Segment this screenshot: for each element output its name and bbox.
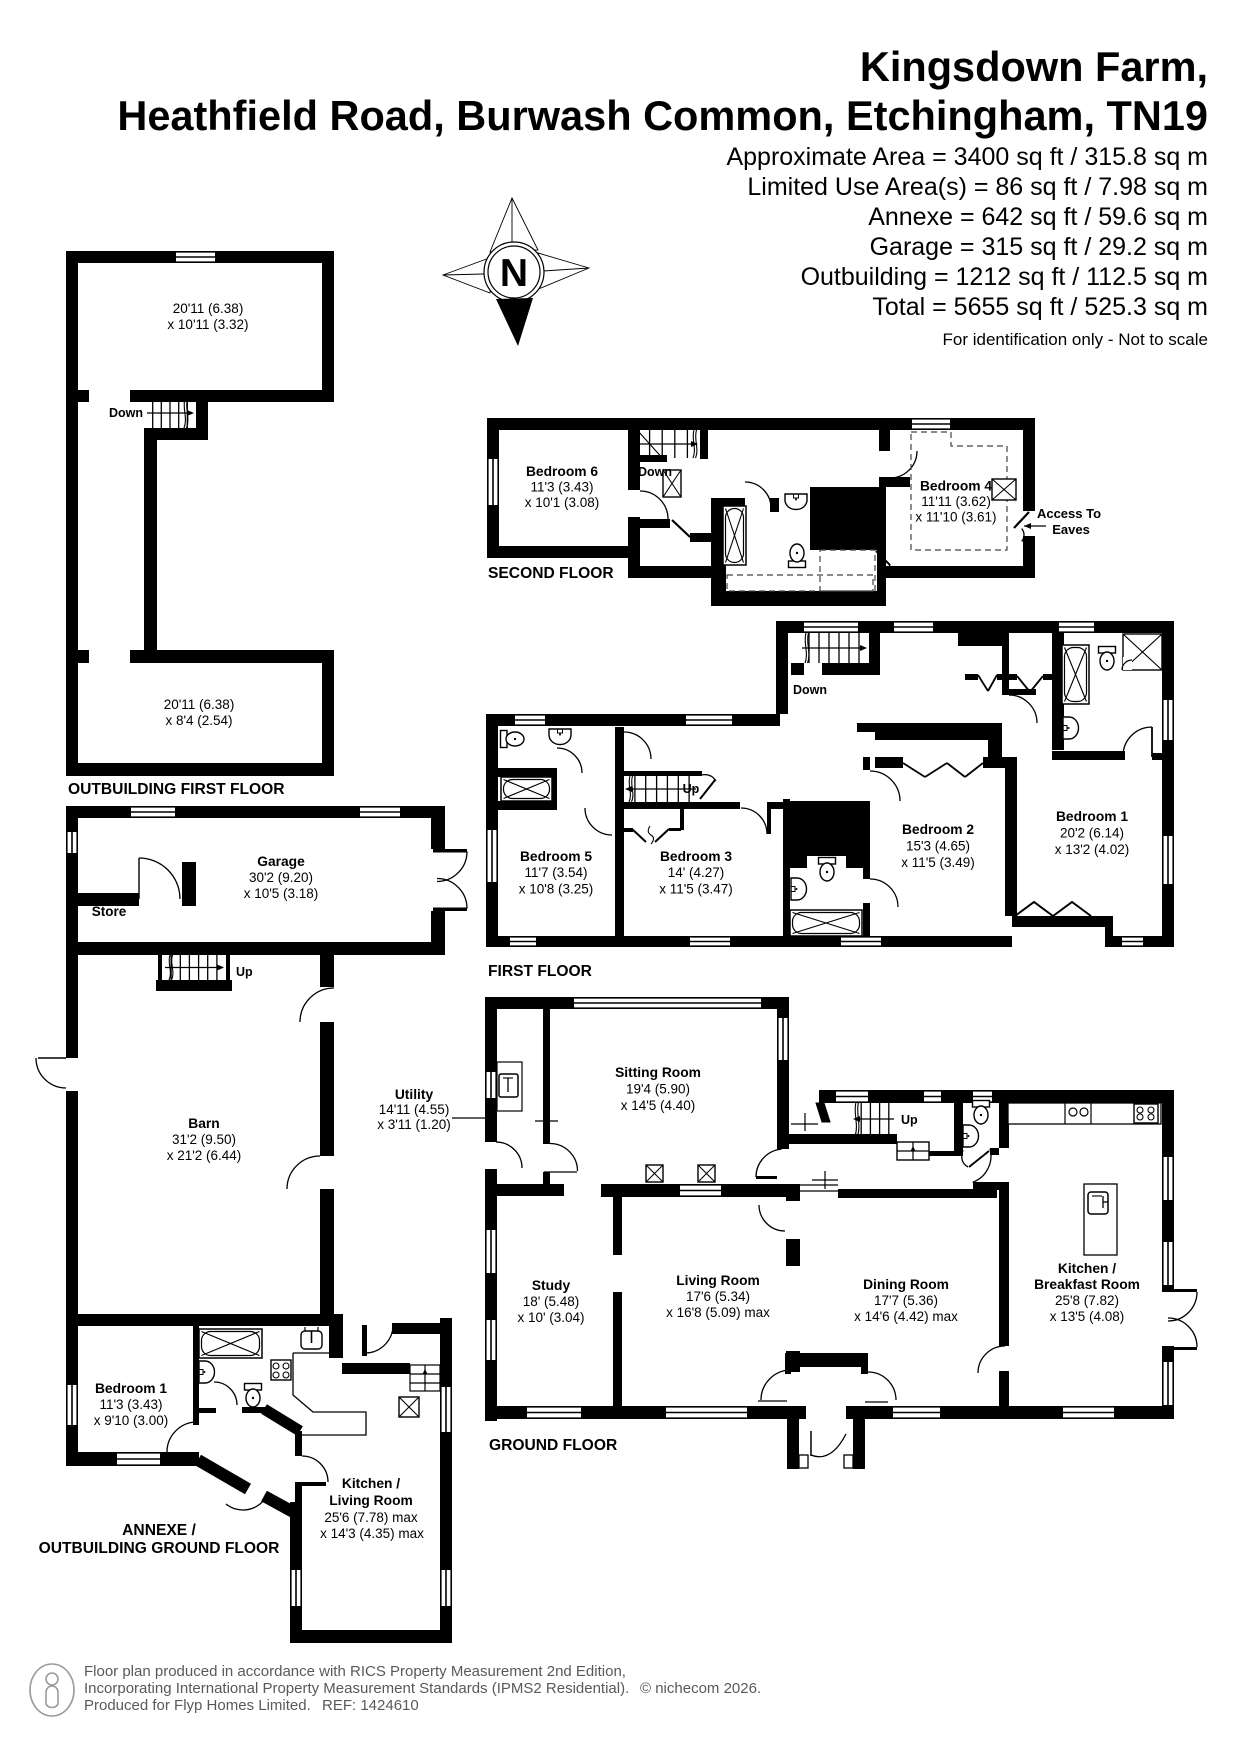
svg-text:25'6 (7.78) max: 25'6 (7.78) max [324,1510,418,1525]
svg-text:Eaves: Eaves [1052,522,1090,537]
svg-text:20'11 (6.38): 20'11 (6.38) [173,301,244,316]
svg-text:x 9'10 (3.00): x 9'10 (3.00) [94,1413,169,1428]
svg-text:11'3 (3.43): 11'3 (3.43) [530,480,593,495]
svg-text:Bedroom 4: Bedroom 4 [920,479,992,494]
svg-text:For identification only - Not: For identification only - Not to scale [942,330,1208,349]
svg-text:x 10'5 (3.18): x 10'5 (3.18) [244,886,319,901]
svg-text:OUTBUILDING FIRST FLOOR: OUTBUILDING FIRST FLOOR [68,781,285,798]
svg-text:x 13'2 (4.02): x 13'2 (4.02) [1055,842,1130,857]
svg-text:Garage: Garage [257,854,305,869]
svg-text:11'11 (3.62): 11'11 (3.62) [921,494,991,509]
svg-text:11'7 (3.54): 11'7 (3.54) [524,865,587,880]
svg-text:25'8 (7.82): 25'8 (7.82) [1055,1293,1119,1308]
svg-text:Down: Down [638,465,672,479]
svg-text:OUTBUILDING GROUND FLOOR: OUTBUILDING GROUND FLOOR [39,1540,280,1557]
svg-text:Up: Up [901,1113,918,1127]
svg-text:Kitchen /: Kitchen / [1058,1261,1116,1276]
svg-text:x 14'5 (4.40): x 14'5 (4.40) [621,1098,696,1113]
svg-text:Produced for Flyp Homes Limite: Produced for Flyp Homes Limited. [84,1697,311,1714]
svg-text:x 11'5 (3.47): x 11'5 (3.47) [659,882,733,897]
svg-text:Living Room: Living Room [329,1493,413,1508]
svg-text:Annexe = 642 sq ft / 59.6 sq m: Annexe = 642 sq ft / 59.6 sq m [868,203,1208,231]
svg-text:Sitting Room: Sitting Room [615,1065,701,1080]
svg-text:x 10'8 (3.25): x 10'8 (3.25) [519,882,594,897]
svg-text:Dining Room: Dining Room [863,1277,949,1292]
svg-text:Approximate Area = 3400 sq ft: Approximate Area = 3400 sq ft / 315.8 sq… [726,143,1208,171]
svg-text:Total = 5655 sq ft / 525.3 sq: Total = 5655 sq ft / 525.3 sq m [872,293,1208,321]
svg-text:Utility: Utility [395,1087,434,1102]
svg-text:x 13'5 (4.08): x 13'5 (4.08) [1050,1309,1125,1324]
svg-text:Bedroom 1: Bedroom 1 [1056,809,1128,824]
svg-text:x 16'8 (5.09) max: x 16'8 (5.09) max [666,1305,770,1320]
svg-text:Heathfield Road, Burwash Commo: Heathfield Road, Burwash Common, Etching… [117,92,1208,139]
svg-text:Up: Up [683,782,700,796]
svg-text:x 10'1 (3.08): x 10'1 (3.08) [525,495,600,510]
svg-text:11'3 (3.43): 11'3 (3.43) [99,1397,162,1412]
svg-text:Bedroom 2: Bedroom 2 [902,822,974,837]
svg-text:x 14'3 (4.35) max: x 14'3 (4.35) max [320,1526,424,1541]
svg-text:Outbuilding = 1212 sq ft / 112: Outbuilding = 1212 sq ft / 112.5 sq m [801,263,1208,291]
svg-text:14'11 (4.55): 14'11 (4.55) [379,1102,450,1117]
svg-text:Living Room: Living Room [676,1273,760,1288]
svg-text:Up: Up [236,965,253,979]
svg-text:GROUND FLOOR: GROUND FLOOR [489,1437,617,1454]
svg-text:x 14'6 (4.42) max: x 14'6 (4.42) max [854,1309,958,1324]
svg-text:REF: 1424610: REF: 1424610 [322,1697,419,1714]
svg-text:Garage = 315 sq ft / 29.2 sq m: Garage = 315 sq ft / 29.2 sq m [870,233,1208,261]
svg-text:N: N [500,252,528,295]
svg-text:17'6 (5.34): 17'6 (5.34) [686,1289,750,1304]
svg-text:x 11'5 (3.49): x 11'5 (3.49) [901,855,975,870]
svg-text:19'4 (5.90): 19'4 (5.90) [626,1082,690,1097]
svg-text:31'2 (9.50): 31'2 (9.50) [172,1132,236,1147]
svg-text:Kingsdown Farm,: Kingsdown Farm, [860,43,1208,90]
svg-text:18' (5.48): 18' (5.48) [523,1294,580,1309]
svg-text:Limited Use Area(s) = 86 sq ft: Limited Use Area(s) = 86 sq ft / 7.98 sq… [747,173,1208,201]
svg-text:20'11 (6.38): 20'11 (6.38) [164,697,235,712]
svg-text:14' (4.27): 14' (4.27) [668,865,725,880]
svg-text:17'7 (5.36): 17'7 (5.36) [874,1293,938,1308]
svg-text:ANNEXE /: ANNEXE / [122,1522,196,1539]
svg-text:15'3 (4.65): 15'3 (4.65) [906,839,970,854]
svg-text:Down: Down [793,683,827,697]
svg-text:FIRST FLOOR: FIRST FLOOR [488,963,592,980]
svg-text:© nichecom 2026.: © nichecom 2026. [640,1680,761,1697]
svg-text:Study: Study [532,1278,571,1293]
svg-text:Bedroom 5: Bedroom 5 [520,849,592,864]
svg-text:x 10' (3.04): x 10' (3.04) [517,1310,584,1325]
svg-text:Barn: Barn [188,1116,219,1131]
svg-text:x 10'11 (3.32): x 10'11 (3.32) [167,317,248,332]
svg-text:x 11'10 (3.61): x 11'10 (3.61) [915,510,996,525]
svg-text:x 3'11 (1.20): x 3'11 (1.20) [377,1117,451,1132]
svg-text:Bedroom 3: Bedroom 3 [660,849,732,864]
svg-text:x 8'4 (2.54): x 8'4 (2.54) [165,713,232,728]
svg-text:30'2 (9.20): 30'2 (9.20) [249,870,313,885]
svg-text:Down: Down [109,406,143,420]
svg-text:Store: Store [92,904,127,919]
svg-text:SECOND FLOOR: SECOND FLOOR [488,565,614,582]
svg-text:Floor plan produced in accorda: Floor plan produced in accordance with R… [84,1663,626,1680]
svg-text:20'2 (6.14): 20'2 (6.14) [1060,826,1124,841]
svg-text:Incorporating International Pr: Incorporating International Property Mea… [84,1680,629,1697]
svg-text:x 21'2 (6.44): x 21'2 (6.44) [167,1148,242,1163]
svg-text:Kitchen /: Kitchen / [342,1476,400,1491]
svg-text:Bedroom 6: Bedroom 6 [526,464,598,479]
svg-text:Bedroom 1: Bedroom 1 [95,1381,167,1396]
svg-text:Access To: Access To [1037,506,1101,521]
svg-text:Breakfast Room: Breakfast Room [1034,1277,1140,1292]
